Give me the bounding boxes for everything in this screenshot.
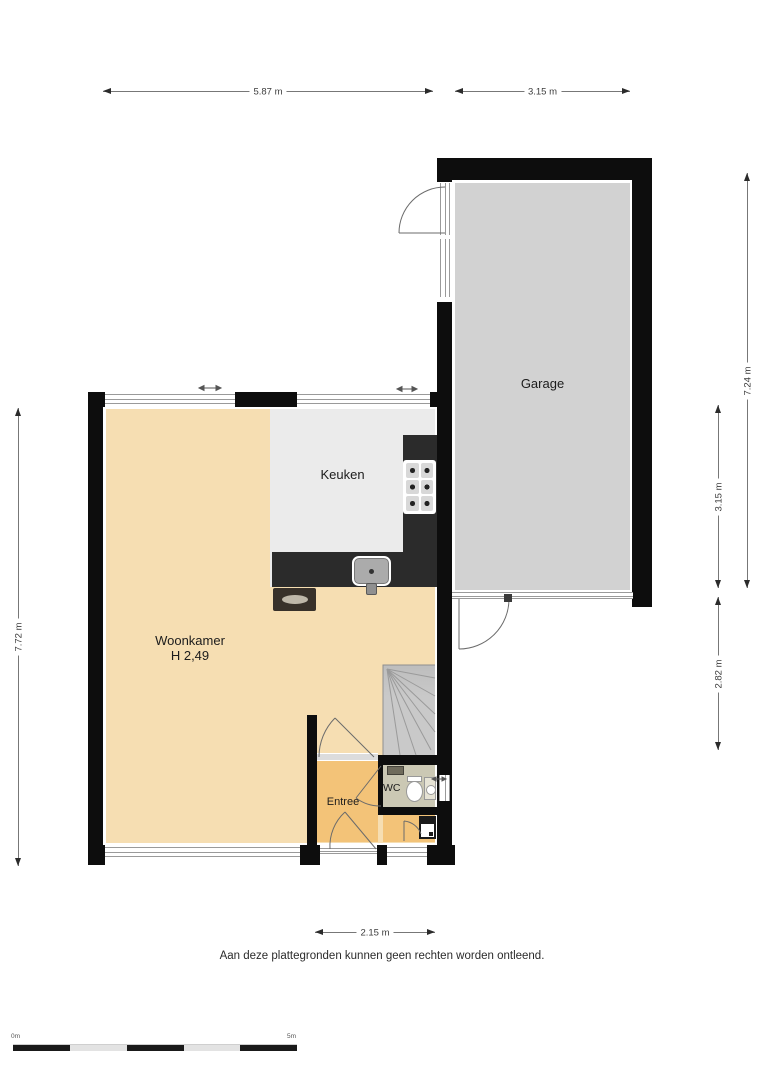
- garage-west-wall-stub: [437, 158, 452, 182]
- dimension-bottom-entree-label: 2.15 m: [356, 928, 393, 939]
- garage-right-wall: [632, 158, 652, 607]
- stairs: [383, 665, 435, 755]
- wc-label: WC: [383, 781, 409, 796]
- south-window-living: [105, 847, 300, 857]
- dimension-right-upper: 3.15 m: [718, 405, 719, 588]
- south-window-closet: [387, 847, 427, 857]
- dimension-left-main-label: 7.72 m: [14, 618, 25, 655]
- dimension-top-main-label: 5.87 m: [249, 87, 286, 98]
- floorplan-canvas: 5.87 m 3.15 m 7.72 m 7.24 m 3.15 m 2.82 …: [0, 0, 764, 1080]
- north-wall-pier: [235, 392, 297, 407]
- dimension-right-lower: 2.82 m: [718, 597, 719, 750]
- woonkamer-name: Woonkamer: [100, 633, 280, 648]
- dimension-right-lower-label: 2.82 m: [714, 655, 725, 692]
- stairs-south-wall: [378, 755, 437, 765]
- disclaimer-text: Aan deze plattegronden kunnen geen recht…: [0, 950, 764, 962]
- house-west-wall: [88, 392, 103, 865]
- kitchen-faucet: [366, 583, 377, 595]
- garage-west-door: [399, 187, 445, 233]
- garage-west-window: [440, 239, 450, 297]
- dimension-left-main: 7.72 m: [18, 408, 19, 866]
- dimension-top-garage: 3.15 m: [455, 91, 630, 92]
- garage-south-door: [459, 599, 509, 649]
- wc-south-wall: [378, 807, 437, 815]
- dimension-right-garage-label: 7.24 m: [743, 362, 754, 399]
- north-wall-corner: [88, 392, 105, 407]
- wc-cistern: [387, 766, 404, 775]
- south-wall-pier-a: [300, 845, 320, 865]
- south-wall-corner-east: [427, 845, 455, 865]
- woonkamer-height: H 2,49: [100, 648, 280, 663]
- woonkamer-label: Woonkamer H 2,49: [100, 633, 280, 663]
- dimension-top-garage-label: 3.15 m: [524, 87, 561, 98]
- keuken-label: Keuken: [270, 467, 415, 482]
- scale-bar-end-label: 5m: [287, 1033, 296, 1040]
- meter-closet-appliance: [419, 816, 436, 839]
- garage-west-door-glazing: [440, 183, 450, 235]
- garage-top-wall: [437, 158, 652, 180]
- garage-south-door-line: [452, 592, 633, 599]
- south-wall-pier-b: [377, 845, 387, 865]
- fireplace: [273, 588, 316, 611]
- north-window-west: [105, 394, 235, 404]
- north-window-kitchen: [297, 394, 430, 404]
- wc-washbasin: [424, 777, 436, 800]
- dimension-right-upper-label: 3.15 m: [714, 478, 725, 515]
- dimension-bottom-entree: 2.15 m: [315, 932, 435, 933]
- south-wall-corner-west: [88, 845, 105, 865]
- dimension-right-garage: 7.24 m: [747, 173, 748, 588]
- entree-doorway-threshold: [317, 753, 378, 761]
- scale-bar: [13, 1044, 297, 1051]
- dimension-top-main: 5.87 m: [103, 91, 433, 92]
- scale-bar-start-label: 0m: [11, 1033, 20, 1040]
- front-door-threshold: [320, 848, 377, 854]
- garage-label: Garage: [455, 376, 630, 391]
- kitchen-sink: [352, 556, 391, 586]
- entree-west-wall: [307, 715, 317, 847]
- north-wall-east-piece: [430, 392, 452, 407]
- wc-window: [439, 775, 450, 801]
- entree-label: Entree: [317, 795, 369, 810]
